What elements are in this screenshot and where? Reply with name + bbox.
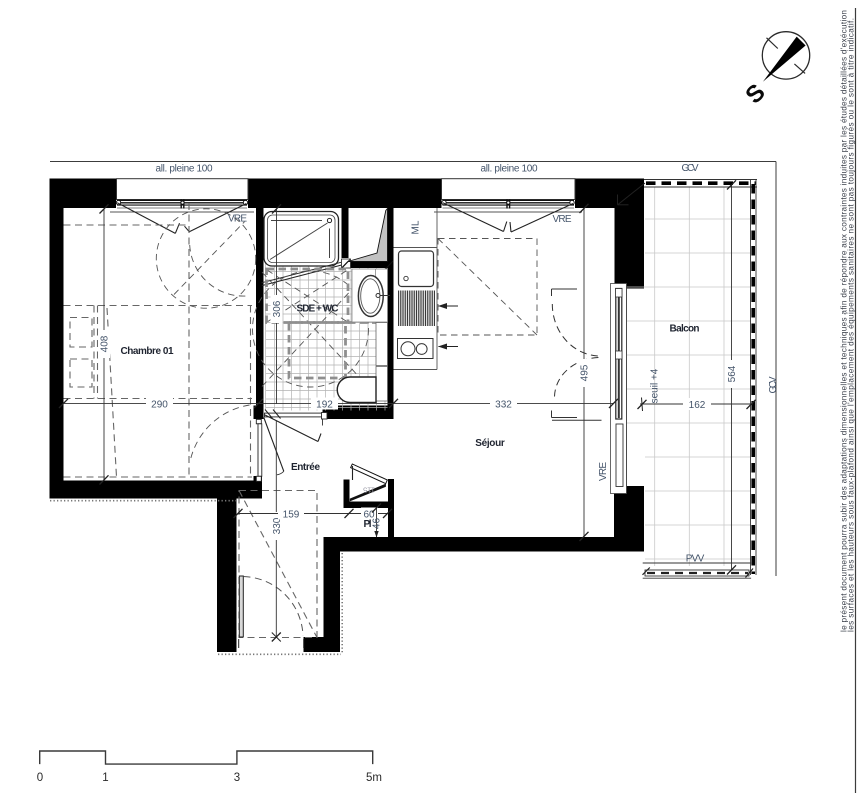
svg-text:5m: 5m (366, 772, 382, 784)
svg-text:159: 159 (283, 510, 300, 521)
svg-text:PVV: PVV (686, 554, 705, 565)
svg-text:332: 332 (495, 400, 512, 411)
svg-text:408: 408 (100, 335, 111, 352)
svg-text:162: 162 (689, 400, 706, 411)
svg-text:les surfaces et les hauteurs s: les surfaces et les hauteurs sous faux-p… (847, 18, 856, 632)
svg-text:all. pleine 100: all. pleine 100 (481, 164, 538, 175)
svg-text:1: 1 (102, 772, 108, 784)
svg-text:GCV: GCV (768, 376, 779, 393)
svg-text:3: 3 (234, 772, 240, 784)
svg-text:330: 330 (272, 517, 283, 534)
svg-text:VRE: VRE (228, 214, 247, 225)
svg-text:Entrée: Entrée (291, 462, 320, 473)
svg-text:ML: ML (410, 220, 421, 234)
svg-text:VRE: VRE (598, 462, 609, 481)
svg-text:GCV: GCV (682, 163, 699, 174)
svg-text:Séjour: Séjour (475, 438, 505, 449)
svg-text:seuil +4: seuil +4 (650, 368, 661, 403)
svg-text:192: 192 (316, 400, 333, 411)
svg-text:Chambre 01: Chambre 01 (121, 346, 174, 357)
svg-text:564: 564 (727, 365, 738, 382)
svg-text:all. pleine 100: all. pleine 100 (156, 164, 213, 175)
svg-text:46: 46 (372, 518, 383, 530)
svg-text:SDE + WC: SDE + WC (297, 304, 339, 315)
svg-text:0: 0 (37, 772, 43, 784)
svg-text:306: 306 (272, 300, 283, 317)
svg-text:290: 290 (151, 400, 168, 411)
svg-text:115: 115 (363, 486, 375, 495)
svg-text:VRE: VRE (553, 214, 572, 225)
svg-text:495: 495 (580, 364, 591, 381)
svg-text:S: S (740, 79, 770, 110)
svg-text:Pl: Pl (364, 519, 372, 530)
svg-text:Balcon: Balcon (670, 324, 700, 335)
